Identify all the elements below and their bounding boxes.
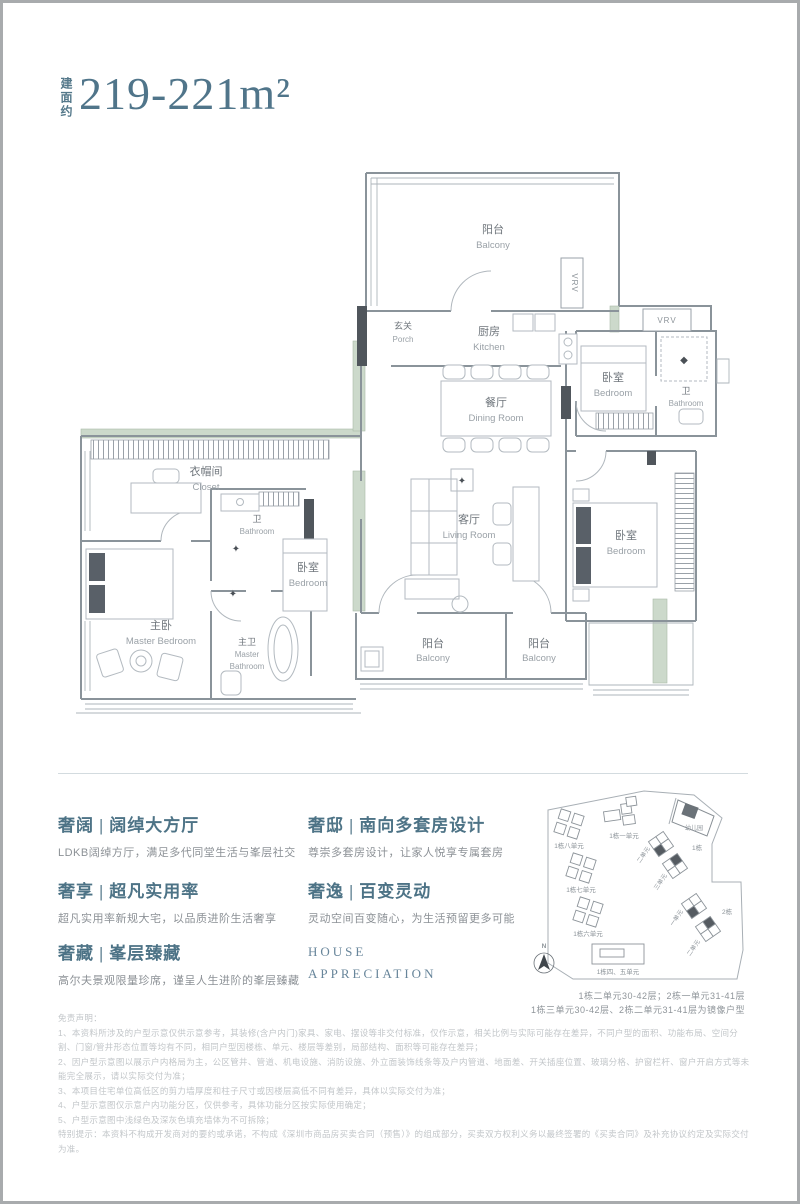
b45-label: 1栋四、五单元 — [597, 967, 640, 976]
vrv-label-2: VRV — [657, 316, 676, 325]
room-bath-mid-en: Bathroom — [240, 527, 275, 536]
tower1-unit2-label: 二单元 — [635, 845, 652, 864]
feature-efficiency: 奢享 | 超凡实用率 超凡实用率新规大宅，以品质进阶生活奢享 — [58, 877, 308, 926]
feature-title: 奢享 | 超凡实用率 — [58, 877, 308, 902]
room-living-zh: 客厅 — [458, 512, 480, 526]
brand-line2: APPRECIATION — [308, 963, 436, 985]
b1u1-label: 1栋一单元 — [609, 831, 639, 840]
disclaimer-line: 2、因户型示意图以展示户内格局为主，公区管井、管道、机电设施、消防设施、外立面装… — [58, 1055, 753, 1084]
disclaimer-line: 4、户型示意图仅示意户内功能分区，仅供参考，具体功能分区按实际使用确定； — [58, 1098, 753, 1113]
room-master-bath-zh: 主卫 — [238, 636, 256, 647]
room-balcony-left-zh: 阳台 — [422, 636, 444, 650]
room-dining-zh: 餐厅 — [485, 395, 507, 409]
feature-title: 奢邸 | 南向多套房设计 — [308, 811, 528, 836]
feature-desc: 高尔夫景观限量珍席，谨呈人生进阶的峯层臻藏 — [58, 972, 308, 988]
room-balcony-right-en: Balcony — [522, 653, 556, 664]
brand-line1: HOUSE — [308, 941, 436, 963]
disclaimer: 免责声明： 1、本资料所涉及的户型示意仅供示意参考，其装修(含户内门)家具、家电… — [58, 1011, 753, 1156]
siteplan-caption-1: 1栋二单元30-42层；2栋一单元31-41层 — [578, 989, 745, 1002]
room-bedroom-topright-en: Bedroom — [594, 388, 633, 399]
tower1-label: 1栋 — [692, 843, 703, 852]
kindergarten-label: 幼儿园 — [685, 824, 703, 832]
room-bedroom-mid-en: Bedroom — [289, 578, 328, 589]
b8-label: 1栋八单元 — [554, 841, 584, 850]
feature-spacious: 奢阔 | 阔绰大方厅 LDKB阔绰方厅，满足多代同堂生活与峯层社交 — [58, 811, 308, 860]
room-closet-zh: 衣帽间 — [190, 464, 223, 478]
feature-desc: 灵动空间百变随心，为生活预留更多可能 — [308, 910, 528, 926]
disclaimer-heading: 免责声明： — [58, 1011, 753, 1026]
room-master-bath-en1: Master — [235, 650, 260, 659]
siteplan: 幼儿园 — [526, 786, 766, 986]
compass-n-label: N — [542, 943, 547, 950]
svg-text:◆: ◆ — [680, 355, 688, 366]
brand-slogan: HOUSE APPRECIATION — [308, 941, 436, 985]
room-closet-en: Closet — [193, 482, 220, 493]
tower2-unit1-label: 一单元 — [668, 908, 685, 927]
feature-desc: 尊崇多套房设计，让家人悦享专属套房 — [308, 844, 528, 860]
tower2-unit2-label: 二单元 — [685, 938, 702, 957]
disclaimer-line: 1、本资料所涉及的户型示意仅供示意参考，其装修(含户内门)家具、家电、摆设等非交… — [58, 1026, 753, 1055]
walls — [81, 173, 716, 699]
room-bedroom-right-en: Bedroom — [607, 546, 646, 557]
room-bedroom-mid-zh: 卧室 — [297, 560, 319, 574]
disclaimer-line: 特别提示：本资料不构成开发商对的要约或承诺，不构成《深圳市商品房买卖合同（预售）… — [58, 1127, 753, 1156]
room-bath-topright-zh: 卫 — [681, 386, 690, 396]
section-divider — [58, 773, 748, 774]
area-label: 建面约 — [58, 77, 75, 123]
vrv-units: VRV VRV — [561, 258, 691, 331]
room-balcony-left-en: Balcony — [416, 653, 450, 664]
room-bedroom-topright-zh: 卧室 — [602, 370, 624, 384]
feature-title: 奢藏 | 峯层臻藏 — [58, 939, 308, 964]
floorplan-drawing: VRV VRV ◆ ✦ ✦ ✦ 阳台 Balcony 玄关 Porch 厨房 K… — [61, 151, 761, 751]
disclaimer-line: 5、户型示意图中浅绿色及深灰色填充墙体为不可拆除； — [58, 1113, 753, 1128]
room-bedroom-right-zh: 卧室 — [615, 528, 637, 542]
brochure-page: 建面约 219-221m² — [0, 0, 800, 1204]
feature-suites: 奢邸 | 南向多套房设计 尊崇多套房设计，让家人悦享专属套房 — [308, 811, 528, 860]
svg-text:✦: ✦ — [232, 544, 240, 555]
siteplan-drawing: 幼儿园 — [526, 786, 766, 996]
feature-desc: LDKB阔绰方厅，满足多代同堂生活与峯层社交 — [58, 844, 308, 860]
kindergarten-block: 幼儿园 — [672, 800, 714, 836]
room-dining-en: Dining Room — [469, 413, 524, 424]
feature-desc: 超凡实用率新规大宅，以品质进阶生活奢享 — [58, 910, 308, 926]
disclaimer-line: 3、本项目住宅单位高低区的剪力墙厚度和柱子尺寸或因楼层高低不同有差异，具体以实际… — [58, 1084, 753, 1099]
room-master-bedroom-zh: 主卧 — [150, 619, 172, 632]
tower2-label: 2栋 — [722, 907, 733, 916]
vrv-label-1: VRV — [570, 273, 579, 292]
room-porch-zh: 玄关 — [394, 320, 412, 331]
tower-2: 2栋 一单元 二单元 — [668, 893, 733, 957]
b7-label: 1栋七单元 — [566, 885, 596, 894]
feature-collection: 奢藏 | 峯层臻藏 高尔夫景观限量珍席，谨呈人生进阶的峯层臻藏 — [58, 939, 308, 988]
room-bath-mid-zh: 卫 — [252, 514, 261, 524]
room-bath-topright-en: Bathroom — [669, 399, 704, 408]
room-balcony-top-en: Balcony — [476, 240, 510, 251]
floorplan: VRV VRV ◆ ✦ ✦ ✦ 阳台 Balcony 玄关 Porch 厨房 K… — [61, 151, 761, 751]
area-value: 219-221m² — [79, 71, 291, 117]
compass: N — [534, 943, 554, 973]
room-master-bedroom-en: Master Bedroom — [126, 636, 196, 647]
room-kitchen-zh: 厨房 — [478, 325, 500, 338]
room-porch-en: Porch — [393, 335, 414, 344]
svg-text:✦: ✦ — [229, 589, 237, 600]
room-kitchen-en: Kitchen — [473, 342, 505, 353]
room-balcony-top-zh: 阳台 — [482, 222, 504, 236]
room-balcony-right-zh: 阳台 — [528, 636, 550, 650]
tower-1: 1栋 二单元 三单元 — [635, 831, 703, 891]
room-master-bath-en2: Bathroom — [230, 662, 265, 671]
feature-title: 奢逸 | 百变灵动 — [308, 877, 528, 902]
tower1-unit3-label: 三单元 — [652, 872, 669, 891]
feature-title: 奢阔 | 阔绰大方厅 — [58, 811, 308, 836]
b6-label: 1栋六单元 — [573, 929, 603, 938]
feature-flexible: 奢逸 | 百变灵动 灵动空间百变随心，为生活预留更多可能 — [308, 877, 528, 926]
room-living-en: Living Room — [443, 530, 496, 541]
area-title: 建面约 219-221m² — [58, 71, 291, 123]
svg-text:✦: ✦ — [458, 476, 466, 487]
clover-buildings — [554, 796, 644, 964]
